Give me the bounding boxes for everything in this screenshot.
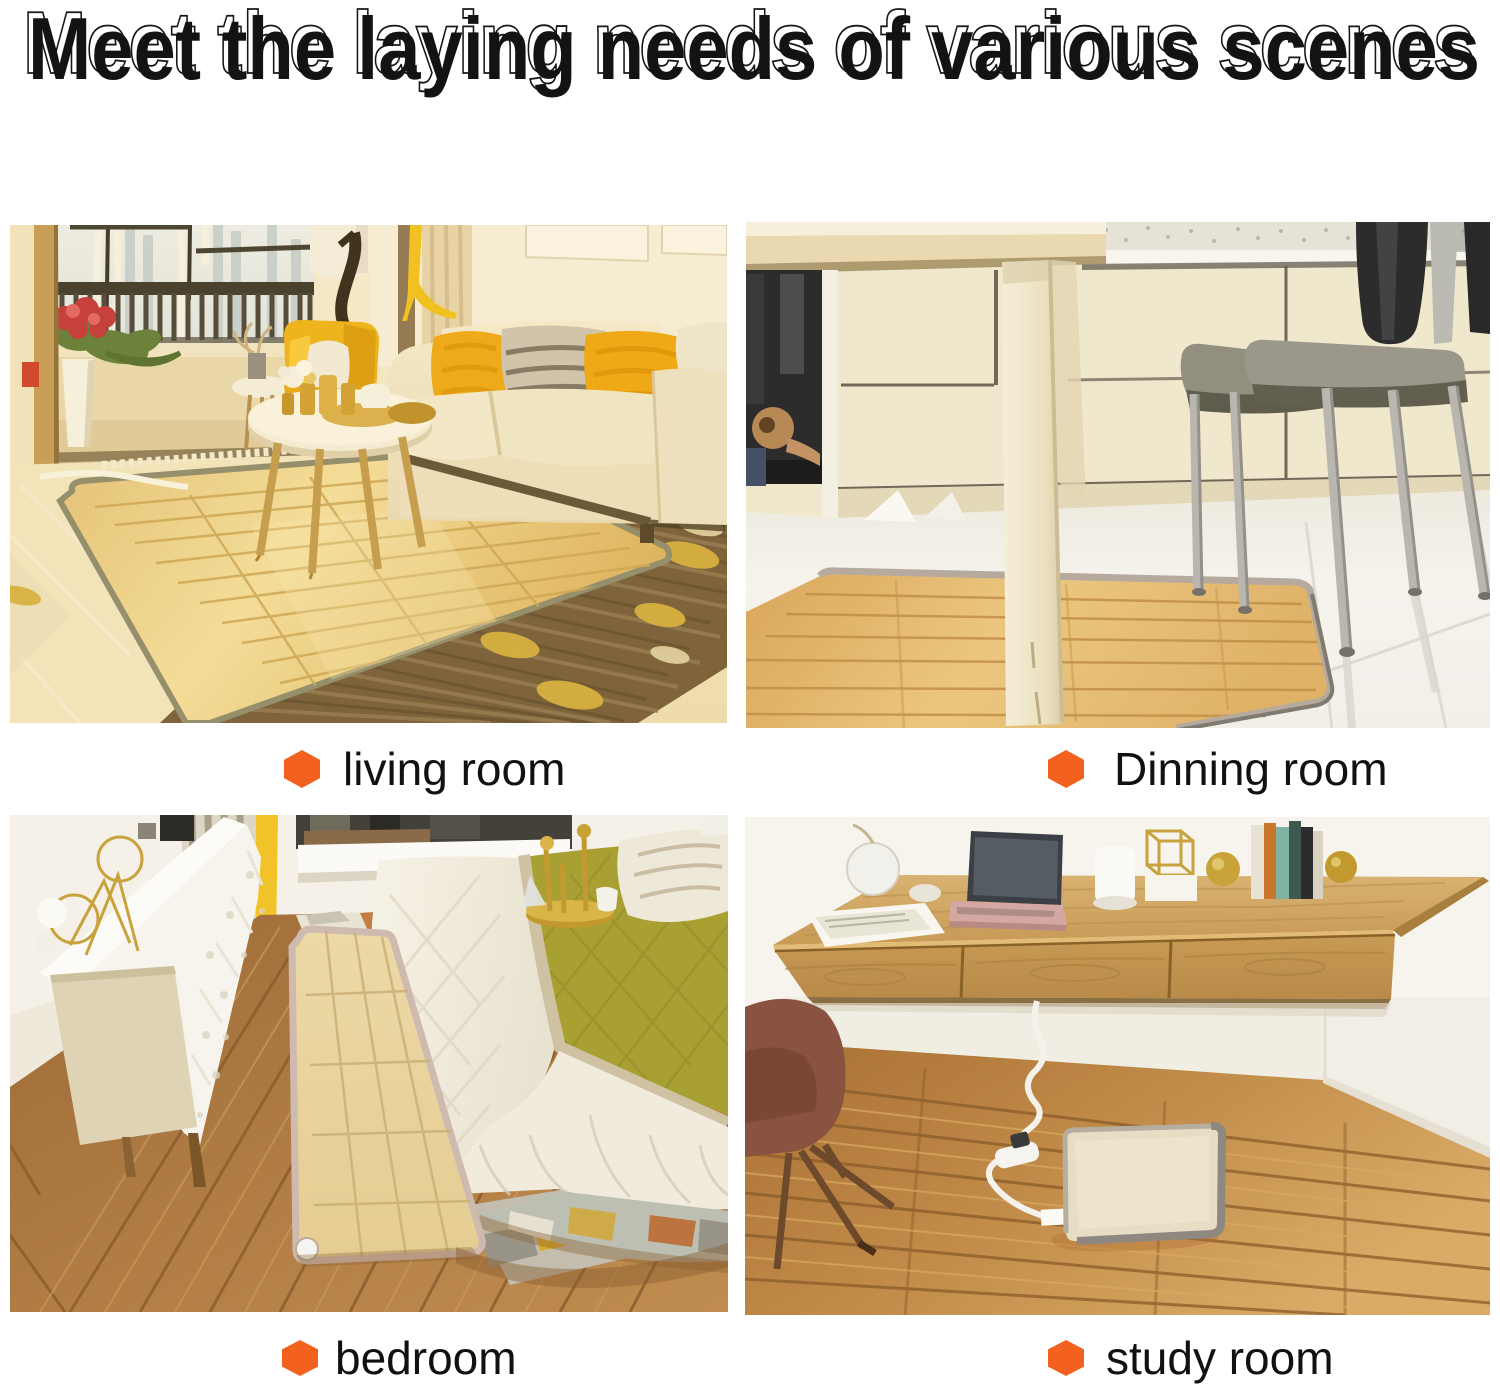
svg-text:Meet the laying needs of vario: Meet the laying needs of various scenes bbox=[28, 0, 1480, 98]
